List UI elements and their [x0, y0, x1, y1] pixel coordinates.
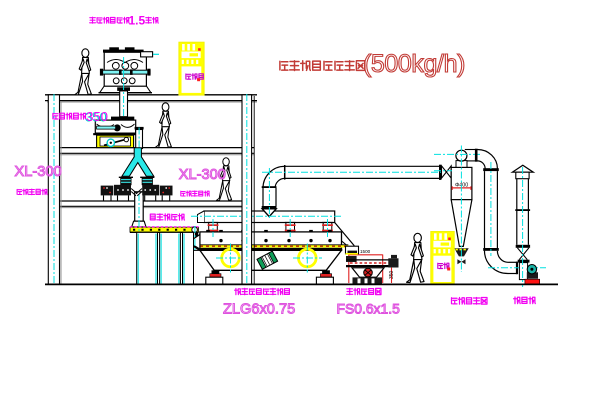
svg-text:1500: 1500 — [360, 249, 371, 254]
svg-text:ZLG6x0.75: ZLG6x0.75 — [223, 302, 295, 318]
svg-text:1.5: 1.5 — [129, 14, 146, 28]
svg-text:FS0.6x1.5: FS0.6x1.5 — [337, 301, 401, 317]
svg-text:(500kg/h): (500kg/h) — [363, 50, 465, 78]
svg-text:350: 350 — [389, 270, 395, 279]
svg-text:XL-300: XL-300 — [15, 164, 62, 180]
svg-text:XL-300: XL-300 — [179, 167, 226, 183]
svg-text:350: 350 — [86, 109, 108, 124]
